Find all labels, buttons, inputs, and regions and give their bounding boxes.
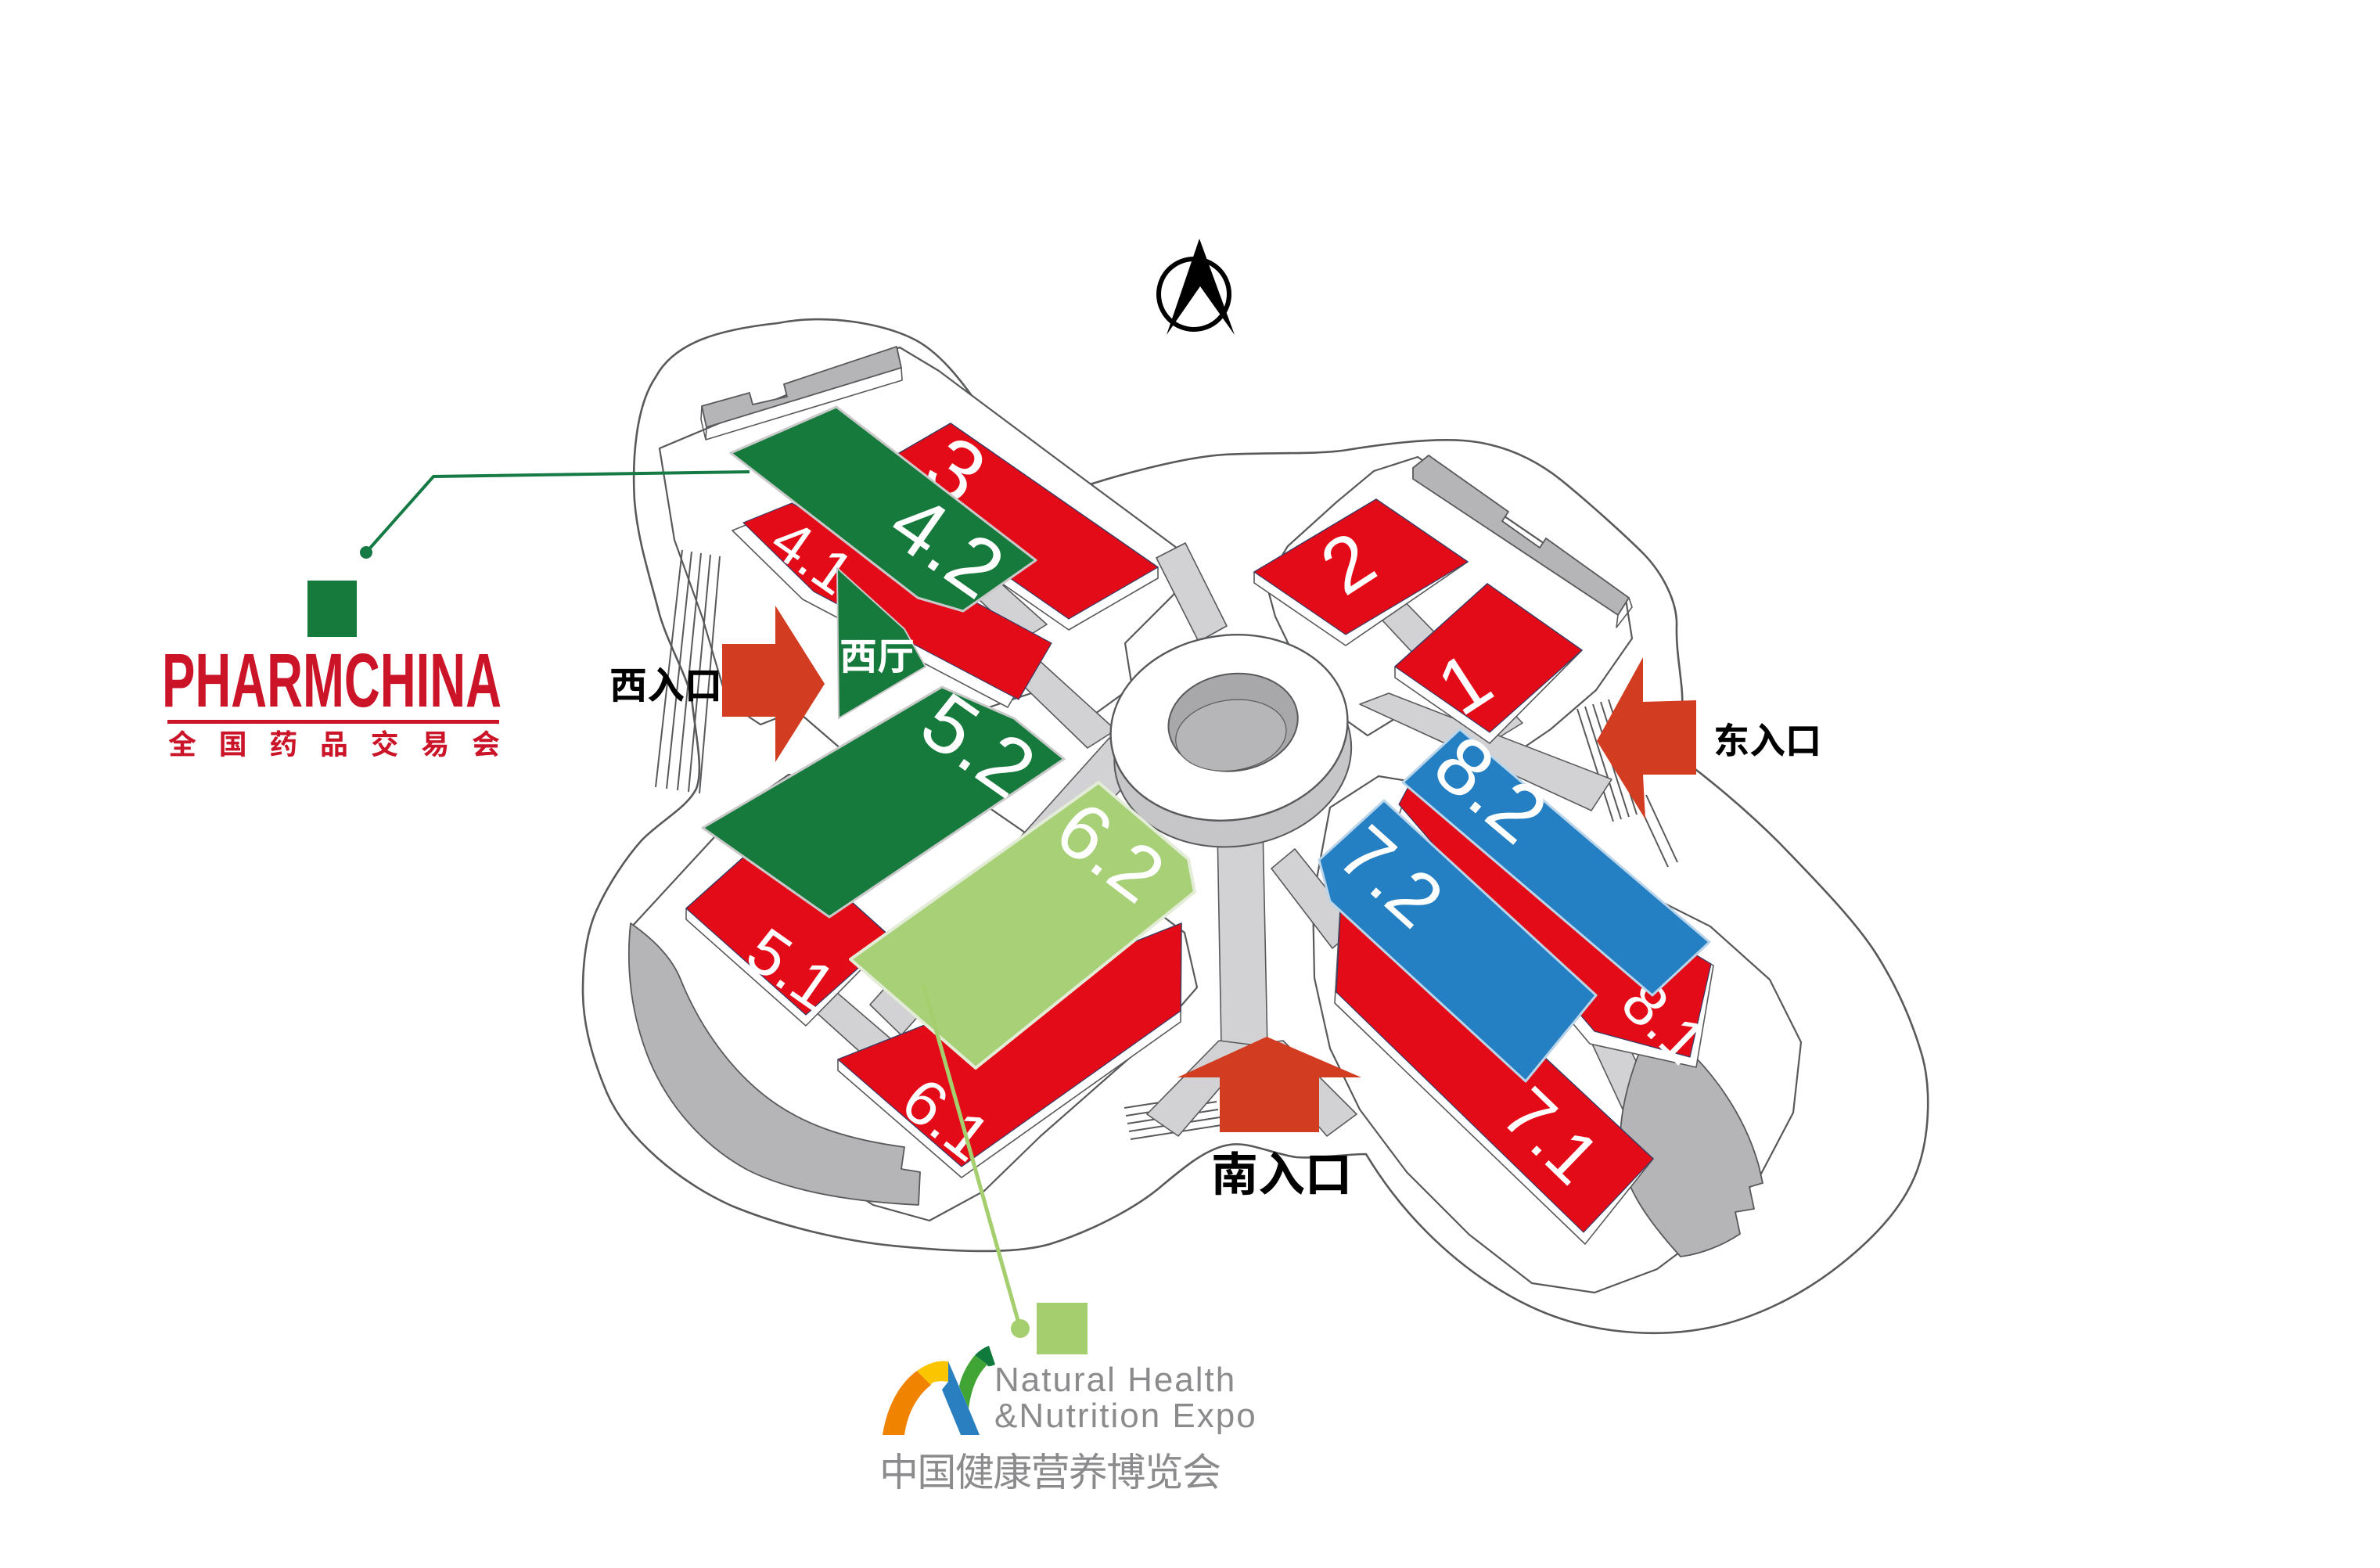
svg-text:Natural Health: Natural Health <box>994 1361 1236 1399</box>
svg-text:PHARMCHINA: PHARMCHINA <box>162 639 502 724</box>
svg-text:&Nutrition Expo: &Nutrition Expo <box>994 1397 1257 1435</box>
